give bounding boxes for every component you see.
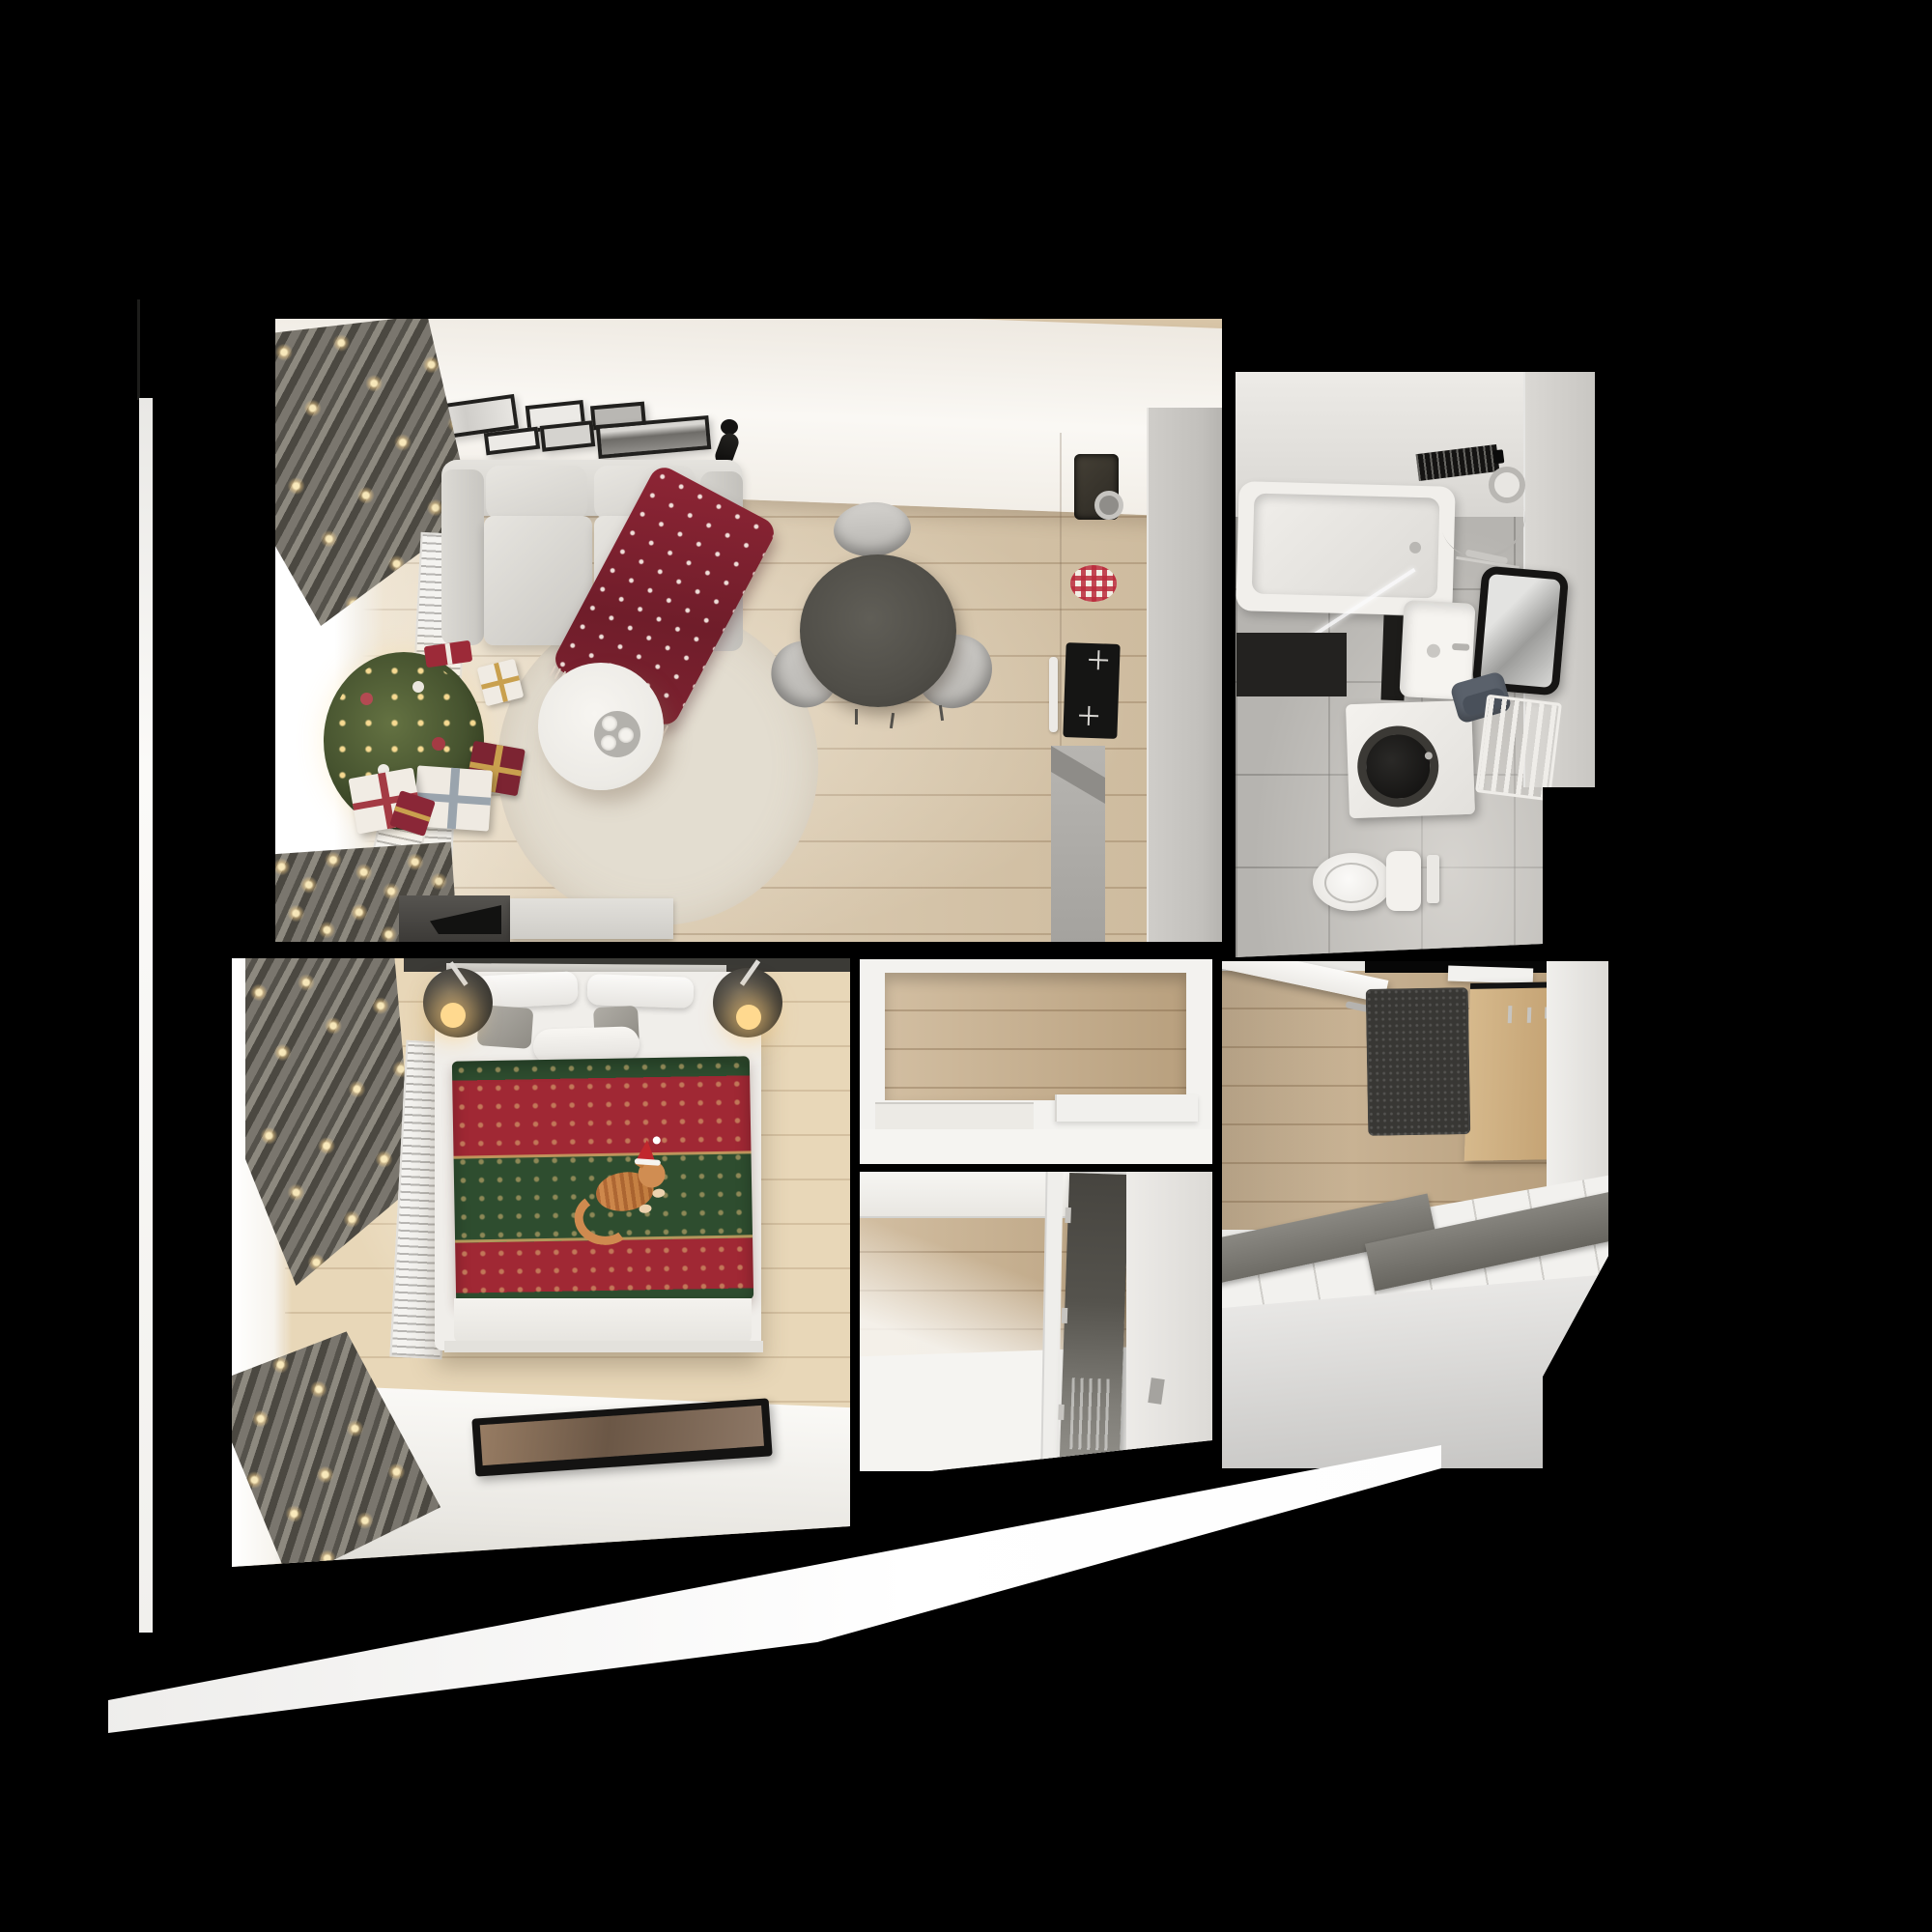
tree-ornament-red-2 <box>432 737 445 751</box>
toilet-seat-line <box>1324 863 1378 903</box>
bed-frame-bottom <box>444 1341 763 1352</box>
candle-2 <box>618 727 634 743</box>
apartment-floorplan-render <box>0 0 1932 1932</box>
wall-sconce-right <box>713 968 782 1037</box>
vent-knob <box>1493 449 1505 464</box>
washing-machine <box>1346 700 1475 818</box>
entry-bottom-wall-face <box>1222 1273 1608 1468</box>
picture-frame-5 <box>540 420 596 452</box>
chair-leg-1 <box>855 709 858 724</box>
tree-ornament-red-1 <box>360 693 373 705</box>
hall-upper-bottom-strip <box>860 1129 1212 1164</box>
tree-ornament-white-1 <box>412 681 424 693</box>
toilet-tank <box>1386 851 1421 911</box>
candle-tray <box>594 711 640 757</box>
gift-ribbon <box>444 643 453 666</box>
candle-3 <box>601 735 616 751</box>
sofa-back-cushion-left <box>486 466 587 520</box>
towel-radiator <box>1475 695 1562 802</box>
wall-hook-2 <box>1527 1008 1532 1023</box>
tv-screen-reflection <box>430 905 501 934</box>
oven-handle <box>1049 657 1058 732</box>
living-room <box>275 319 1222 956</box>
hob-cross-2b <box>1088 706 1091 725</box>
sofa-armrest-left <box>441 469 484 645</box>
coffee-table <box>538 663 664 790</box>
door-hinge-3 <box>1058 1405 1065 1420</box>
tv-sideboard-white <box>510 898 673 939</box>
gift-ribbon <box>394 806 431 821</box>
door-stopper <box>1148 1378 1164 1405</box>
sconce-glow <box>440 1003 466 1028</box>
red-checkered-trivet <box>1070 565 1117 602</box>
wall-hook-1 <box>1508 1006 1513 1023</box>
hall-right-wall <box>1126 1172 1212 1460</box>
interior-door <box>1060 1173 1129 1461</box>
cat-paw-2 <box>639 1204 652 1214</box>
bathtub <box>1236 481 1455 616</box>
tv-sideboard-dark <box>399 895 510 942</box>
dining-table <box>800 554 956 707</box>
door-lower-grille <box>1069 1378 1115 1450</box>
bed-sheet-bottom <box>454 1298 752 1345</box>
candle-1 <box>602 716 617 731</box>
hallway-upper <box>860 959 1212 1164</box>
hall-threshold-right <box>1055 1094 1198 1122</box>
bathroom <box>1236 372 1595 961</box>
door-hinge-1 <box>1065 1207 1071 1223</box>
sconce-glow <box>736 1005 761 1030</box>
cat-with-santa-hat <box>566 1151 677 1249</box>
living-bottom-wall <box>275 942 1222 956</box>
bedroom <box>232 958 850 1577</box>
left-wall-dark-edge <box>137 299 140 400</box>
induction-cooktop <box>1063 642 1120 739</box>
sink-faucet <box>1094 491 1123 520</box>
cat-paw-1 <box>652 1188 666 1199</box>
door-hinge-2 <box>1062 1308 1068 1323</box>
flush-plate <box>1427 855 1439 903</box>
kitchen-bath-dividing-wall <box>1147 408 1222 956</box>
hallway-lower <box>860 1172 1212 1471</box>
pillow-white-right <box>586 974 694 1009</box>
kitchen-base-cabinet <box>1051 746 1105 956</box>
basin-drain <box>1427 643 1441 658</box>
wall-sconce-left <box>423 968 493 1037</box>
hob-cross-1b <box>1097 650 1100 669</box>
tv-screen <box>480 1406 764 1465</box>
basin-faucet <box>1452 643 1469 651</box>
cabinet-top-sliver <box>1051 746 1105 804</box>
doormat <box>1366 987 1471 1136</box>
black-floor-mat <box>1236 633 1347 696</box>
entry-hall <box>1222 961 1608 1468</box>
left-wall-white-edge <box>139 398 153 1633</box>
hall-upper-floor <box>885 973 1186 1100</box>
washer-door <box>1356 724 1440 809</box>
entry-shelf <box>1448 965 1534 983</box>
hall-threshold-left <box>875 1102 1034 1129</box>
toilet-bowl <box>1313 853 1392 911</box>
